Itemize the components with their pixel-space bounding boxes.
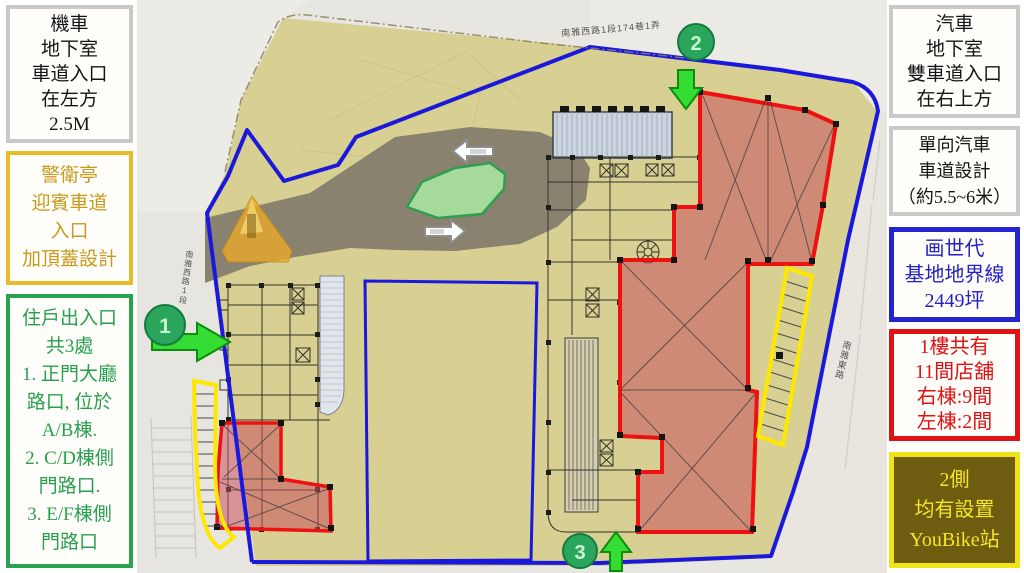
marker-2: 2 — [678, 24, 714, 60]
note-lane-width: 單向汽車 車道設計 （約5.5~6米） — [889, 126, 1020, 216]
marker-2-number: 2 — [690, 33, 701, 55]
note-car-entrance: 汽車 地下室 雙車道入口 在右上方 — [889, 5, 1020, 118]
annotated-site-plan-slide: { "left_panel": { "boxes": [ { "id": "mo… — [0, 0, 1024, 573]
note-shops: 1樓共有 11間店舖 右棟:9間 左棟:2間 — [889, 329, 1020, 441]
note-site-boundary: 画世代 基地地界線 2449坪 — [889, 227, 1020, 322]
note-motorcycle-entrance: 機車 地下室 車道入口 在左方 2.5M — [6, 5, 133, 143]
note-youbike: 2側 均有設置 YouBike站 — [889, 452, 1020, 568]
marker-1-number: 1 — [159, 315, 171, 338]
note-guard-booth: 警衛亭 迎賓車道 入口 加頂蓋設計 — [6, 151, 133, 285]
note-resident-entrances: 住戶出入口 共3處 1. 正門大廳 路口, 位於 A/B棟. 2. C/D棟側 … — [6, 294, 133, 568]
left-ramp-strip — [320, 276, 344, 415]
car-ramp-canopy — [553, 106, 672, 158]
right-ramp-strip — [565, 338, 598, 512]
marker-3-number: 3 — [574, 542, 585, 564]
site-plan-drawing: 1 2 3 — [137, 0, 887, 573]
site-plan: 1 2 3 南雅西路1段174巷1弄 南雅西路1段 南雅東路 — [137, 0, 887, 573]
marker-3: 3 — [563, 534, 597, 568]
